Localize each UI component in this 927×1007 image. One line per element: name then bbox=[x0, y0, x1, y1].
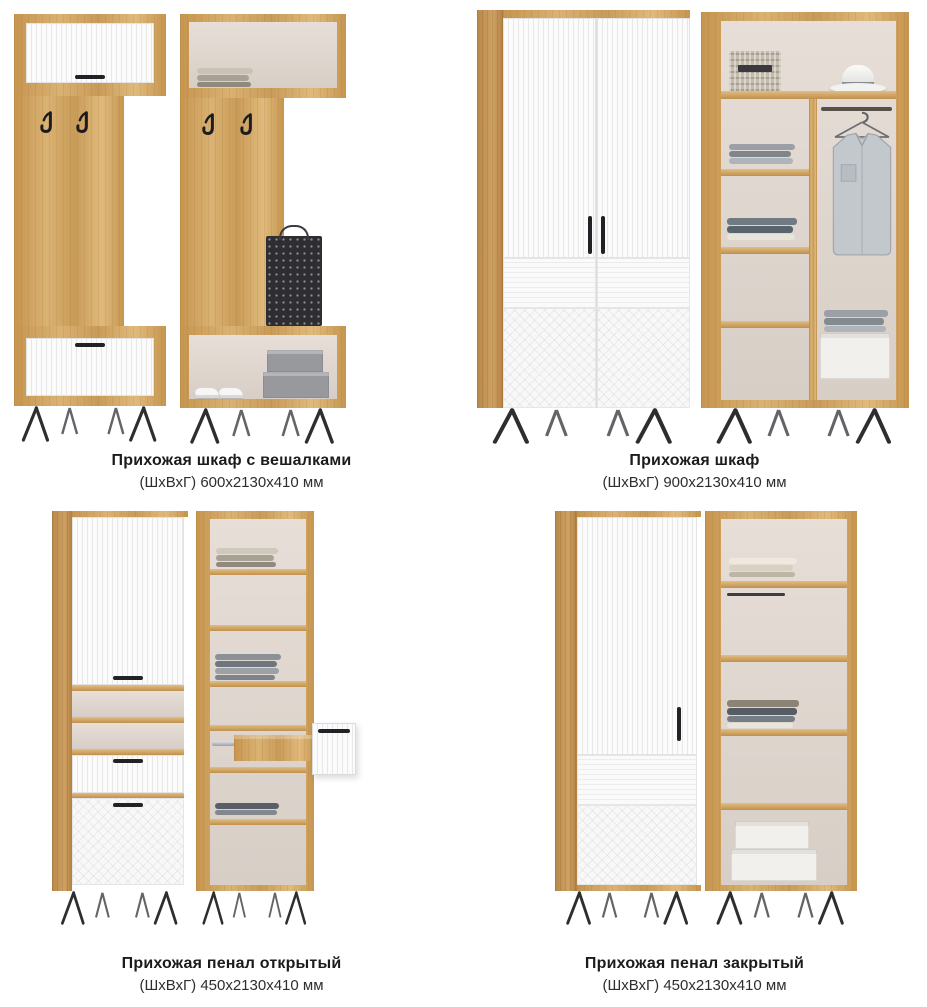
drawer-front bbox=[72, 755, 184, 793]
product-name: Прихожая шкаф с вешалками bbox=[0, 452, 463, 470]
small-rail bbox=[727, 593, 785, 596]
door-handle bbox=[588, 216, 592, 254]
product-images bbox=[0, 503, 463, 953]
storage-box bbox=[267, 350, 323, 372]
product-view-closed bbox=[555, 511, 701, 927]
side-panel bbox=[477, 10, 503, 408]
side-panel bbox=[555, 511, 577, 891]
white-box bbox=[820, 333, 890, 379]
carcass bbox=[196, 511, 314, 891]
door bbox=[577, 517, 697, 885]
white-box bbox=[731, 849, 817, 881]
bench-open-shelf bbox=[180, 326, 346, 408]
shelf bbox=[721, 169, 809, 176]
product-card-open-pencil-case: Прихожая пенал открытый (ШхВхГ) 450х2130… bbox=[0, 503, 463, 1006]
doors bbox=[503, 18, 690, 408]
product-view-open bbox=[705, 511, 857, 927]
drawer-box bbox=[234, 735, 316, 761]
product-dimensions: (ШхВхГ) 450х2130х410 мм bbox=[0, 977, 463, 994]
product-view-closed bbox=[477, 10, 690, 446]
product-dimensions: (ШхВхГ) 600х2130х410 мм bbox=[0, 474, 463, 491]
door-handle bbox=[113, 803, 143, 807]
door-handle bbox=[75, 75, 105, 79]
product-card-hall-unit-with-hooks: Прихожая шкаф с вешалками (ШхВхГ) 600х21… bbox=[0, 0, 463, 503]
product-view-open bbox=[196, 511, 356, 927]
upper-open-shelf bbox=[180, 14, 346, 98]
product-dimensions: (ШхВхГ) 450х2130х410 мм bbox=[463, 977, 926, 994]
drawer-handle bbox=[75, 343, 105, 347]
pulled-drawer bbox=[234, 723, 356, 779]
product-caption: Прихожая шкаф (ШхВхГ) 900х2130х410 мм bbox=[463, 452, 926, 491]
upper-cabinet-door bbox=[26, 23, 154, 83]
product-view-open bbox=[180, 14, 346, 444]
back-panel bbox=[14, 96, 124, 326]
catalog-grid: Прихожая шкаф с вешалками (ШхВхГ) 600х21… bbox=[0, 0, 927, 1006]
hairpin-legs bbox=[485, 408, 682, 444]
front bbox=[72, 517, 184, 885]
shelf-interior bbox=[189, 22, 337, 88]
product-name: Прихожая пенал открытый bbox=[0, 955, 463, 973]
product-caption: Прихожая шкаф с вешалками (ШхВхГ) 600х21… bbox=[0, 452, 463, 491]
hairpin-legs bbox=[711, 891, 851, 925]
upper-cabinet bbox=[14, 14, 166, 96]
bench-drawer-front bbox=[26, 338, 154, 396]
open-niches bbox=[72, 685, 184, 755]
product-caption: Прихожая пенал открытый (ШхВхГ) 450х2130… bbox=[0, 955, 463, 994]
left-door bbox=[503, 18, 596, 408]
hairpin-legs bbox=[709, 408, 901, 444]
shelf bbox=[721, 321, 809, 328]
product-dimensions: (ШхВхГ) 900х2130х410 мм bbox=[463, 474, 926, 491]
storage-box bbox=[263, 372, 329, 398]
jeans-stack bbox=[727, 699, 799, 728]
product-caption: Прихожая пенал закрытый (ШхВхГ) 450х2130… bbox=[463, 955, 926, 994]
towel-stack bbox=[216, 547, 278, 567]
gift-bag bbox=[266, 236, 322, 326]
product-images bbox=[0, 0, 463, 450]
divider-panel bbox=[809, 99, 817, 400]
sneaker bbox=[219, 388, 243, 398]
towel-stack bbox=[824, 309, 888, 332]
hairpin-legs bbox=[56, 891, 184, 925]
shelf bbox=[721, 91, 896, 99]
shelving-interior bbox=[721, 519, 847, 885]
towel-stack bbox=[215, 795, 281, 815]
hat bbox=[830, 65, 886, 93]
side-panel bbox=[52, 511, 72, 891]
wardrobe-interior bbox=[721, 21, 896, 400]
jeans-stack bbox=[727, 217, 797, 240]
drawer-handle bbox=[113, 759, 143, 763]
product-view-closed bbox=[52, 511, 188, 927]
towel-stack bbox=[729, 143, 795, 164]
coat-hook-icon bbox=[40, 110, 57, 138]
towel-stack bbox=[729, 557, 797, 577]
top-edge bbox=[503, 10, 690, 18]
drawer-handle bbox=[318, 729, 350, 733]
product-card-wardrobe: Прихожая шкаф (ШхВхГ) 900х2130х410 мм bbox=[463, 0, 926, 503]
hairpin-legs bbox=[184, 408, 342, 444]
towel-stack bbox=[197, 67, 253, 87]
door-handle bbox=[601, 216, 605, 254]
white-box bbox=[735, 821, 809, 849]
product-name: Прихожая пенал закрытый bbox=[463, 955, 926, 973]
hairpin-legs bbox=[561, 891, 695, 925]
shirt-on-hanger bbox=[823, 109, 901, 269]
towel-stack bbox=[215, 653, 281, 680]
product-card-closed-pencil-case: Прихожая пенал закрытый (ШхВхГ) 450х2130… bbox=[463, 503, 926, 1006]
hairpin-legs bbox=[198, 891, 312, 925]
coat-hook-icon bbox=[240, 112, 257, 140]
right-door bbox=[597, 18, 690, 408]
product-view-open bbox=[701, 12, 909, 446]
product-name: Прихожая шкаф bbox=[463, 452, 926, 470]
coat-hook-icon bbox=[202, 112, 219, 140]
door-handle bbox=[113, 676, 143, 680]
carcass bbox=[701, 12, 909, 408]
door-handle bbox=[677, 707, 681, 741]
product-images bbox=[463, 0, 926, 450]
shelf-interior bbox=[189, 335, 337, 399]
product-images bbox=[463, 503, 926, 953]
coat-hook-icon bbox=[76, 110, 93, 138]
upper-door bbox=[72, 517, 184, 685]
hairpin-legs bbox=[16, 406, 164, 442]
wicker-basket bbox=[729, 51, 781, 91]
bench-cabinet bbox=[14, 326, 166, 406]
product-view-closed bbox=[14, 14, 166, 444]
shelf bbox=[721, 247, 809, 254]
carcass bbox=[705, 511, 857, 891]
shelving-interior bbox=[210, 519, 306, 885]
sneaker bbox=[195, 388, 219, 398]
lower-door bbox=[72, 798, 184, 885]
